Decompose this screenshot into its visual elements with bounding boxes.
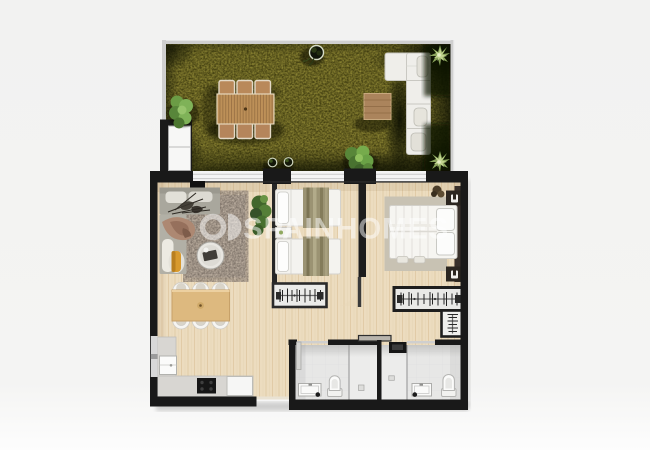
svg-text:SPAINHOMES: SPAINHOMES [243, 213, 449, 246]
